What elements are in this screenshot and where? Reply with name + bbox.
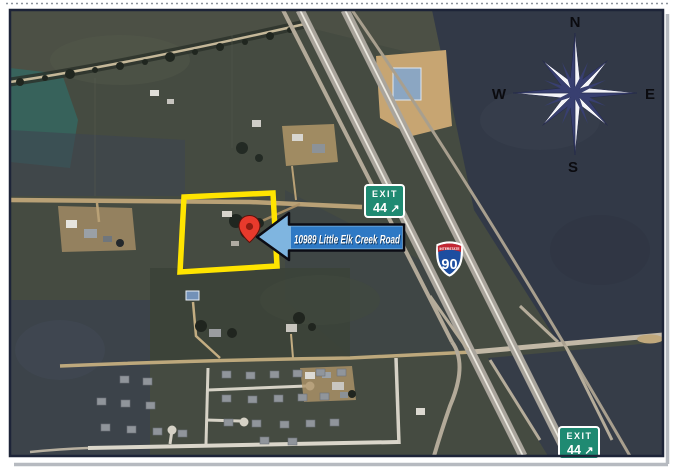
compass-west-label: W <box>492 86 507 103</box>
exit-arrow-icon: ↗ <box>390 203 399 215</box>
compass-east-label: E <box>645 86 655 103</box>
exit-sign-top: EXIT 44 ↗ <box>365 185 404 217</box>
map-figure: EXIT 44 ↗ INTERSTATE 90 10989 Little Elk… <box>0 0 677 473</box>
svg-text:INTERSTATE: INTERSTATE <box>440 246 460 251</box>
svg-text:90: 90 <box>441 257 457 273</box>
svg-text:EXIT: EXIT <box>372 189 398 199</box>
svg-text:EXIT: EXIT <box>566 431 592 441</box>
address-banner-label: 10989 Little Elk Creek Road <box>294 235 401 247</box>
exit-sign-bottom: EXIT 44 ↗ <box>559 427 599 459</box>
compass-north-label: N <box>570 14 581 31</box>
svg-text:44: 44 <box>373 201 387 215</box>
compass-south-label: S <box>568 159 578 176</box>
